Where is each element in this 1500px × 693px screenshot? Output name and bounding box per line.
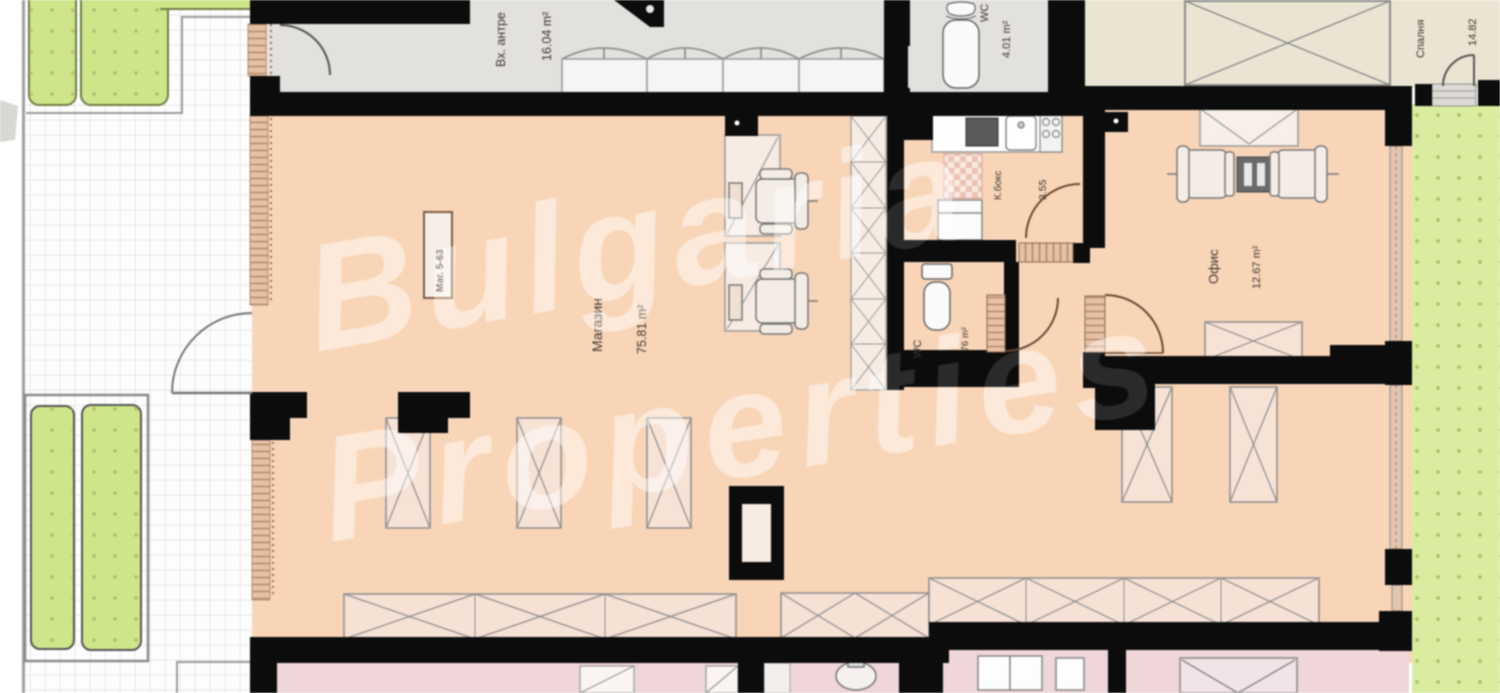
svg-text:3.55: 3.55 xyxy=(1037,179,1049,200)
svg-text:4.01 m²: 4.01 m² xyxy=(1001,20,1013,58)
svg-text:К.бокс: К.бокс xyxy=(992,171,1004,200)
svg-text:Спалня: Спалня xyxy=(1415,19,1427,58)
svg-text:16.04 m²: 16.04 m² xyxy=(540,12,554,61)
svg-text:12.67 m²: 12.67 m² xyxy=(1251,245,1263,289)
svg-text:Офис: Офис xyxy=(1206,249,1221,284)
svg-text:14.82: 14.82 xyxy=(1467,18,1479,46)
svg-text:Вх. антре: Вх. антре xyxy=(494,12,508,67)
svg-text:WC: WC xyxy=(979,4,991,22)
